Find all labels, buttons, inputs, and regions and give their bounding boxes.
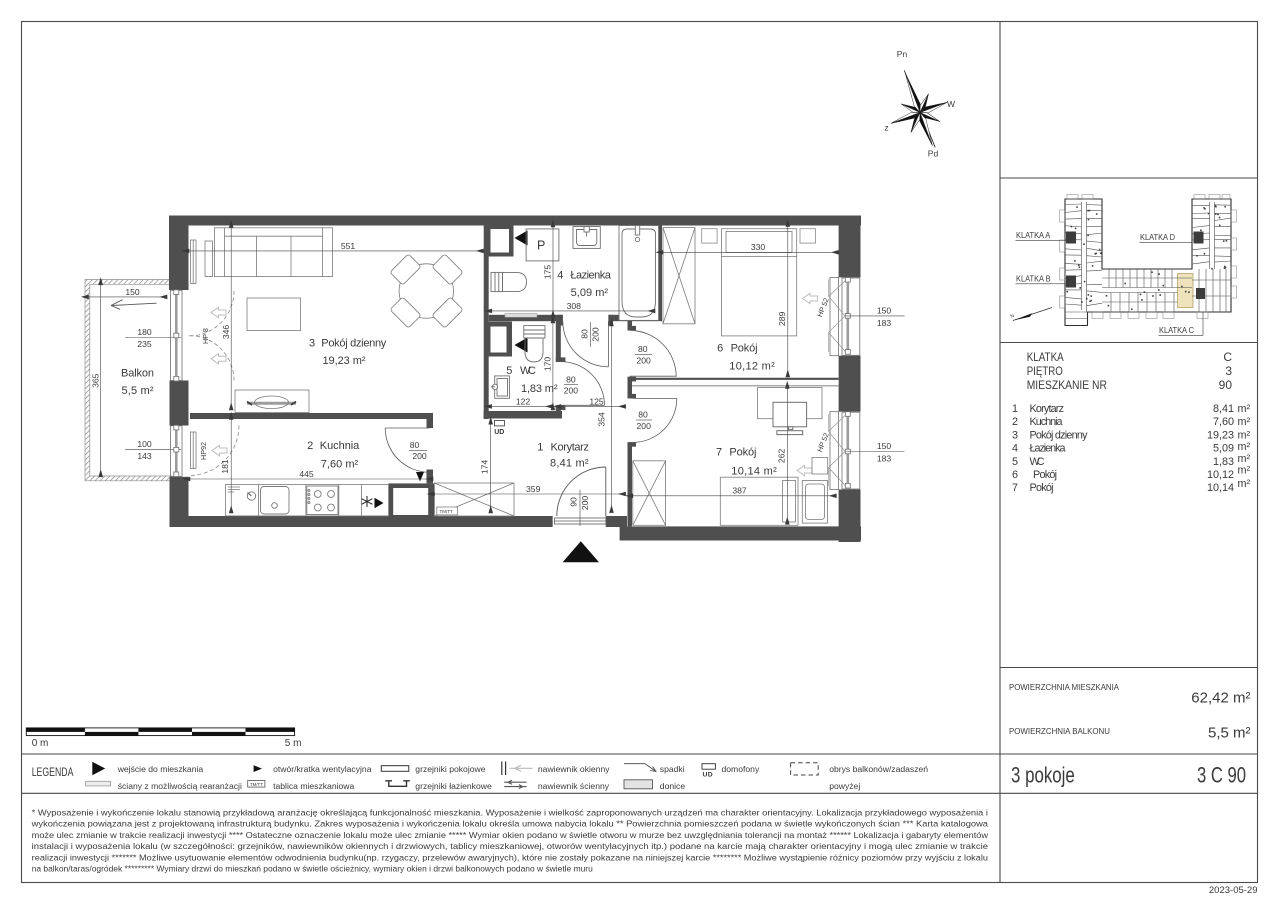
svg-text:ściany z możliwością rearanżac: ściany z możliwością rearanżacji xyxy=(118,781,242,791)
svg-text:Pd: Pd xyxy=(928,149,939,159)
svg-text:5: 5 xyxy=(1012,456,1018,468)
svg-text:m²: m² xyxy=(1238,403,1251,415)
svg-text:183: 183 xyxy=(877,453,892,463)
svg-text:m²: m² xyxy=(1238,441,1251,453)
svg-text:instalacji i wyposażenia lokal: instalacji i wyposażenia lokalu (w szcze… xyxy=(32,841,989,851)
svg-text:otwór/kratka wentylacyjna: otwór/kratka wentylacyjna xyxy=(273,764,372,774)
svg-text:5 m: 5 m xyxy=(285,738,302,749)
svg-text:Pokój: Pokój xyxy=(1033,469,1057,481)
svg-text:445: 445 xyxy=(299,469,314,479)
svg-text:domofony: domofony xyxy=(722,764,760,774)
svg-text:LEGENDA: LEGENDA xyxy=(32,766,74,780)
svg-text:Pokój: Pokój xyxy=(729,447,756,459)
svg-text:Pokój: Pokój xyxy=(1030,482,1054,494)
svg-text:KLATKA C: KLATKA C xyxy=(1159,326,1194,335)
svg-text:grzejniki pokojowe: grzejniki pokojowe xyxy=(415,764,485,774)
svg-text:354: 354 xyxy=(597,412,607,427)
svg-text:TM/TT: TM/TT xyxy=(440,509,453,514)
svg-text:Łazienka: Łazienka xyxy=(570,270,611,282)
svg-text:nawiewnik okienny: nawiewnik okienny xyxy=(538,764,610,774)
svg-text:HP 52: HP 52 xyxy=(815,431,831,453)
svg-text:3: 3 xyxy=(1012,429,1018,441)
svg-text:1: 1 xyxy=(1012,403,1018,415)
svg-text:143: 143 xyxy=(137,451,152,461)
svg-text:200: 200 xyxy=(637,421,652,431)
svg-text:Pokój dzienny: Pokój dzienny xyxy=(321,337,387,349)
svg-text:125: 125 xyxy=(589,396,604,406)
svg-text:donice: donice xyxy=(660,781,686,791)
svg-text:nawiewnik ścienny: nawiewnik ścienny xyxy=(538,781,610,791)
svg-text:HP92: HP92 xyxy=(199,442,208,460)
svg-text:4: 4 xyxy=(557,270,563,282)
svg-text:C: C xyxy=(1223,350,1232,364)
svg-text:359: 359 xyxy=(526,484,541,494)
svg-text:150: 150 xyxy=(877,306,892,316)
svg-text:powyżej: powyżej xyxy=(829,781,860,791)
svg-text:tablica mieszkaniowa: tablica mieszkaniowa xyxy=(273,781,354,791)
svg-text:235: 235 xyxy=(137,339,152,349)
svg-text:1,83 m²: 1,83 m² xyxy=(521,383,558,395)
svg-text:200: 200 xyxy=(412,451,427,461)
svg-text:100: 100 xyxy=(137,439,152,449)
svg-text:obrys balkonów/zadaszeń: obrys balkonów/zadaszeń xyxy=(829,764,928,774)
svg-text:5,5 m²: 5,5 m² xyxy=(1208,725,1251,742)
svg-text:* Wyposażenie i wykończenie lo: * Wyposażenie i wykończenie lokalu stano… xyxy=(32,808,988,818)
svg-text:Pn: Pn xyxy=(897,49,908,59)
svg-text:WC: WC xyxy=(1030,456,1045,468)
svg-text:5: 5 xyxy=(506,365,512,377)
svg-text:KLATKA D: KLATKA D xyxy=(1140,233,1175,242)
svg-text:122: 122 xyxy=(516,396,531,406)
svg-text:1,83: 1,83 xyxy=(1213,456,1234,468)
svg-text:80: 80 xyxy=(410,440,420,450)
svg-text:174: 174 xyxy=(480,460,490,475)
svg-text:330: 330 xyxy=(751,242,766,252)
svg-text:N: N xyxy=(1010,313,1016,320)
svg-text:10,12 m²: 10,12 m² xyxy=(729,361,775,373)
svg-text:6: 6 xyxy=(1012,469,1018,481)
svg-text:WC: WC xyxy=(520,365,536,377)
svg-text:m²: m² xyxy=(1238,429,1251,441)
svg-text:Kuchnia: Kuchnia xyxy=(1030,416,1063,428)
svg-text:150: 150 xyxy=(125,287,140,297)
svg-text:8,41 m²: 8,41 m² xyxy=(550,458,589,470)
svg-text:175: 175 xyxy=(542,265,552,280)
svg-text:UD: UD xyxy=(703,772,713,779)
svg-text:TM/TT: TM/TT xyxy=(250,782,263,787)
svg-text:200: 200 xyxy=(564,385,579,395)
svg-text:10,12: 10,12 xyxy=(1207,469,1234,481)
svg-text:10,14 m²: 10,14 m² xyxy=(731,465,777,477)
svg-text:308: 308 xyxy=(567,301,582,311)
svg-text:realizacji inwestycji *******: realizacji inwestycji ******* Możliwe us… xyxy=(32,852,989,862)
svg-text:z: z xyxy=(884,123,888,133)
svg-text:8,41: 8,41 xyxy=(1213,403,1234,415)
svg-text:Balkon: Balkon xyxy=(121,368,154,380)
svg-text:200: 200 xyxy=(636,355,651,365)
svg-text:Łazienka: Łazienka xyxy=(1030,443,1066,455)
svg-text:Korytarz: Korytarz xyxy=(1030,403,1065,415)
svg-text:Pokój: Pokój xyxy=(731,343,758,355)
svg-text:na balkon/taras/ogródek ******: na balkon/taras/ogródek ********* Wymiar… xyxy=(32,864,593,874)
svg-text:7: 7 xyxy=(1012,482,1018,494)
svg-text:2023-05-29: 2023-05-29 xyxy=(1209,885,1258,896)
svg-text:387: 387 xyxy=(732,486,747,496)
svg-text:6: 6 xyxy=(717,343,723,355)
svg-text:19,23 m²: 19,23 m² xyxy=(323,355,366,367)
svg-text:m²: m² xyxy=(1238,416,1251,428)
svg-text:KLATKA B: KLATKA B xyxy=(1016,274,1051,283)
svg-text:200: 200 xyxy=(580,496,590,511)
svg-text:3: 3 xyxy=(309,337,315,349)
svg-text:W: W xyxy=(947,99,955,109)
svg-text:19,23: 19,23 xyxy=(1207,429,1234,441)
svg-text:POWIERZCHNIA MIESZKANIA: POWIERZCHNIA MIESZKANIA xyxy=(1009,683,1119,692)
svg-text:90: 90 xyxy=(569,497,579,507)
svg-text:0 m: 0 m xyxy=(32,738,49,749)
svg-text:5,09 m²: 5,09 m² xyxy=(571,287,609,299)
svg-text:wykończenia powiązana jest z p: wykończenia powiązana jest z projektowan… xyxy=(31,819,989,829)
svg-text:262: 262 xyxy=(777,449,787,464)
svg-text:KLATKA: KLATKA xyxy=(1027,351,1065,364)
svg-text:HP 8: HP 8 xyxy=(201,328,210,344)
svg-text:200: 200 xyxy=(591,327,601,342)
svg-text:1: 1 xyxy=(537,441,543,453)
svg-text:Korytarz: Korytarz xyxy=(551,441,590,453)
svg-text:może ulec zmianie w trakcie re: może ulec zmianie w trakcie realizacji i… xyxy=(32,830,989,840)
svg-text:MIESZKANIE NR: MIESZKANIE NR xyxy=(1027,379,1107,392)
svg-text:180: 180 xyxy=(137,327,152,337)
svg-text:183: 183 xyxy=(877,318,892,328)
svg-text:80: 80 xyxy=(638,344,648,354)
svg-text:POWIERZCHNIA BALKONU: POWIERZCHNIA BALKONU xyxy=(1009,727,1110,736)
svg-text:5,09: 5,09 xyxy=(1213,443,1234,455)
svg-text:10,14: 10,14 xyxy=(1207,482,1234,494)
svg-text:346: 346 xyxy=(221,325,231,340)
svg-text:7,60 m²: 7,60 m² xyxy=(321,458,359,470)
svg-text:7,60: 7,60 xyxy=(1213,416,1234,428)
svg-text:289: 289 xyxy=(777,311,787,326)
svg-text:wejście do mieszkania: wejście do mieszkania xyxy=(117,764,204,774)
svg-text:80: 80 xyxy=(566,374,576,384)
svg-text:170: 170 xyxy=(542,357,552,372)
svg-text:5,5 m²: 5,5 m² xyxy=(122,385,154,397)
svg-text:551: 551 xyxy=(341,241,356,251)
svg-text:KLATKA A: KLATKA A xyxy=(1016,231,1051,240)
svg-text:P: P xyxy=(537,239,545,253)
svg-text:150: 150 xyxy=(877,441,892,451)
svg-text:3 C 90: 3 C 90 xyxy=(1197,763,1246,788)
svg-text:181: 181 xyxy=(220,459,230,474)
svg-text:spadki: spadki xyxy=(660,764,685,774)
svg-text:UD: UD xyxy=(494,429,504,436)
svg-text:7: 7 xyxy=(716,447,722,459)
svg-text:m²: m² xyxy=(1238,478,1251,490)
svg-text:3 pokoje: 3 pokoje xyxy=(1011,763,1075,788)
svg-text:PIĘTRO: PIĘTRO xyxy=(1027,365,1063,378)
svg-text:90: 90 xyxy=(1219,378,1233,392)
svg-text:80: 80 xyxy=(580,329,590,339)
svg-text:4: 4 xyxy=(1012,443,1018,455)
svg-text:Kuchnia: Kuchnia xyxy=(320,440,360,452)
svg-text:grzejniki łazienkowe: grzejniki łazienkowe xyxy=(415,781,492,791)
svg-text:m²: m² xyxy=(1238,465,1251,477)
svg-text:Pokój dzienny: Pokój dzienny xyxy=(1030,429,1089,441)
svg-text:2: 2 xyxy=(307,440,313,452)
svg-text:3: 3 xyxy=(1225,364,1232,378)
svg-text:62,42 m²: 62,42 m² xyxy=(1191,690,1250,707)
svg-text:m²: m² xyxy=(1238,453,1251,465)
svg-text:365: 365 xyxy=(91,373,101,388)
svg-text:2: 2 xyxy=(1012,416,1018,428)
svg-text:80: 80 xyxy=(638,410,648,420)
